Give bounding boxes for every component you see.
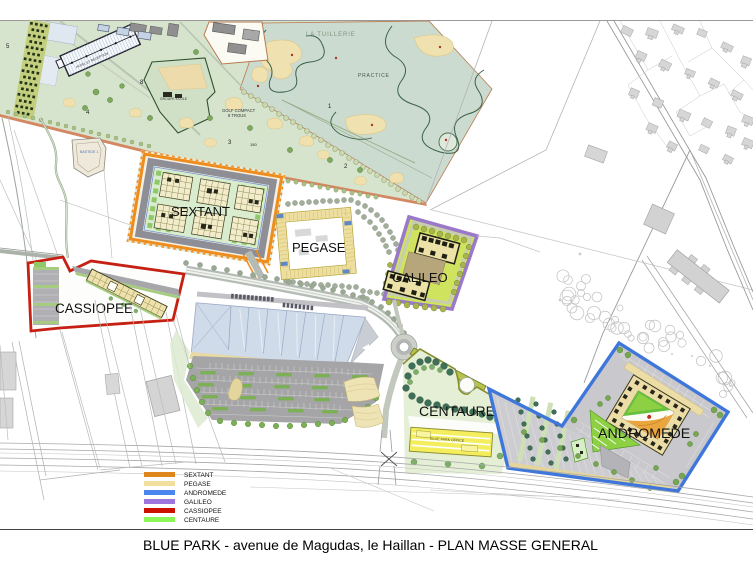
svg-text:PEGASE: PEGASE (184, 481, 211, 488)
svg-text:ANDROMEDE: ANDROMEDE (598, 426, 690, 442)
svg-text:GROUPE ECOLE: GROUPE ECOLE (160, 97, 188, 101)
svg-text:PRACTICE: PRACTICE (358, 73, 390, 79)
svg-text:CASSIOPEE: CASSIOPEE (184, 508, 222, 515)
svg-text:SEXTANT: SEXTANT (171, 204, 230, 219)
svg-text:LA TUILLERIE: LA TUILLERIE (306, 32, 356, 38)
svg-text:GALILEO: GALILEO (184, 499, 212, 506)
svg-text:BASTIDE 1: BASTIDE 1 (80, 150, 98, 154)
svg-text:ANDROMEDE: ANDROMEDE (184, 490, 227, 497)
svg-text:SEXTANT: SEXTANT (184, 472, 214, 479)
svg-text:GALILEO: GALILEO (392, 270, 448, 285)
svg-text:CENTAURE: CENTAURE (419, 403, 495, 419)
svg-text:CASSIOPEE: CASSIOPEE (55, 301, 133, 316)
svg-text:BLUE PARK - avenue de Magudas,: BLUE PARK - avenue de Magudas, le Hailla… (143, 537, 598, 553)
svg-text:150: 150 (250, 142, 257, 147)
svg-text:PEGASE: PEGASE (292, 240, 346, 255)
svg-text:CENTAURE: CENTAURE (184, 517, 220, 524)
svg-text:8 TROUS: 8 TROUS (228, 113, 246, 118)
